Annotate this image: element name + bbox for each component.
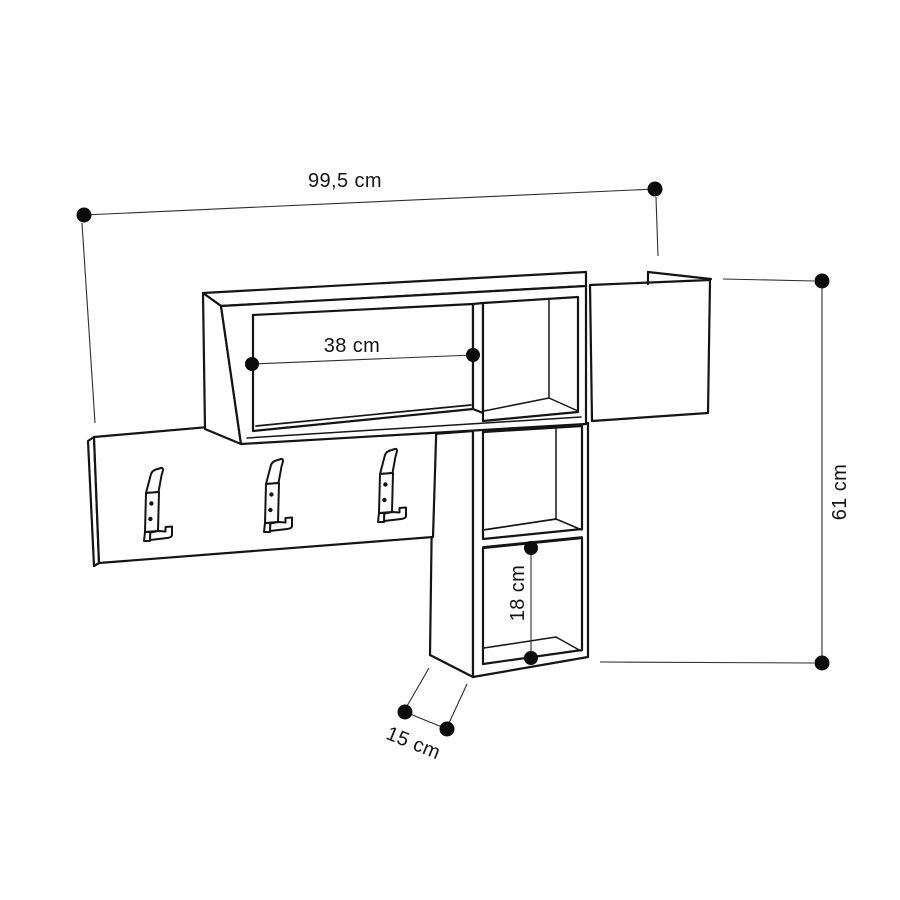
extension-line [449, 684, 467, 723]
dimension-endpoint-dot [815, 656, 830, 671]
hook-foot [264, 523, 270, 532]
screw-dot [383, 482, 387, 486]
hook-plate [379, 473, 393, 513]
cabinet-back-lip-edge [648, 272, 711, 279]
dimension-label-overall-height: 61 cm [829, 464, 851, 520]
hook-plate [145, 492, 159, 532]
extension-line [600, 662, 814, 663]
screw-dot [269, 492, 273, 496]
dimension-label-cubby-height: 18 cm [507, 565, 529, 621]
dimension-endpoint-dot [524, 541, 538, 555]
dimension-line [84, 189, 655, 215]
extension-line [82, 223, 95, 423]
furniture-drawing [88, 272, 711, 677]
dimension-depth: 15 cm [383, 668, 467, 764]
screw-dot [148, 517, 152, 521]
furniture-dimension-drawing: 99,5 cm 38 cm 61 cm 18 cm 15 cm [0, 0, 900, 900]
dimension-endpoint-dot [245, 357, 259, 371]
screw-dot [149, 501, 153, 505]
dimension-endpoint-dot [77, 208, 92, 223]
screw-dot [268, 508, 272, 512]
dimension-endpoint-dot [815, 274, 830, 289]
dimension-label-overall-width: 99,5 cm [308, 170, 382, 192]
dimension-label-shelf-opening: 38 cm [324, 335, 380, 357]
dimension-endpoint-dot [466, 348, 480, 362]
screw-dot [382, 498, 386, 502]
shelf-main-opening [253, 304, 473, 431]
extension-line [407, 668, 429, 706]
diagram-canvas: 99,5 cm 38 cm 61 cm 18 cm 15 cm [0, 0, 900, 900]
extension-line [656, 197, 658, 256]
dimension-endpoint-dot [440, 722, 455, 737]
hook-foot [144, 532, 150, 541]
dimension-endpoint-dot [648, 182, 663, 197]
cabinet-front-face [590, 280, 710, 421]
extension-line [723, 279, 814, 281]
lower-box-left-side [430, 431, 473, 677]
hook-foot [378, 513, 384, 522]
column-lower-opening [483, 538, 582, 664]
dimension-endpoint-dot [524, 651, 538, 665]
hook-plate [265, 483, 279, 523]
right-cabinet [590, 272, 711, 421]
dimension-label-depth: 15 cm [383, 723, 444, 765]
dimension-endpoint-dot [398, 705, 413, 720]
